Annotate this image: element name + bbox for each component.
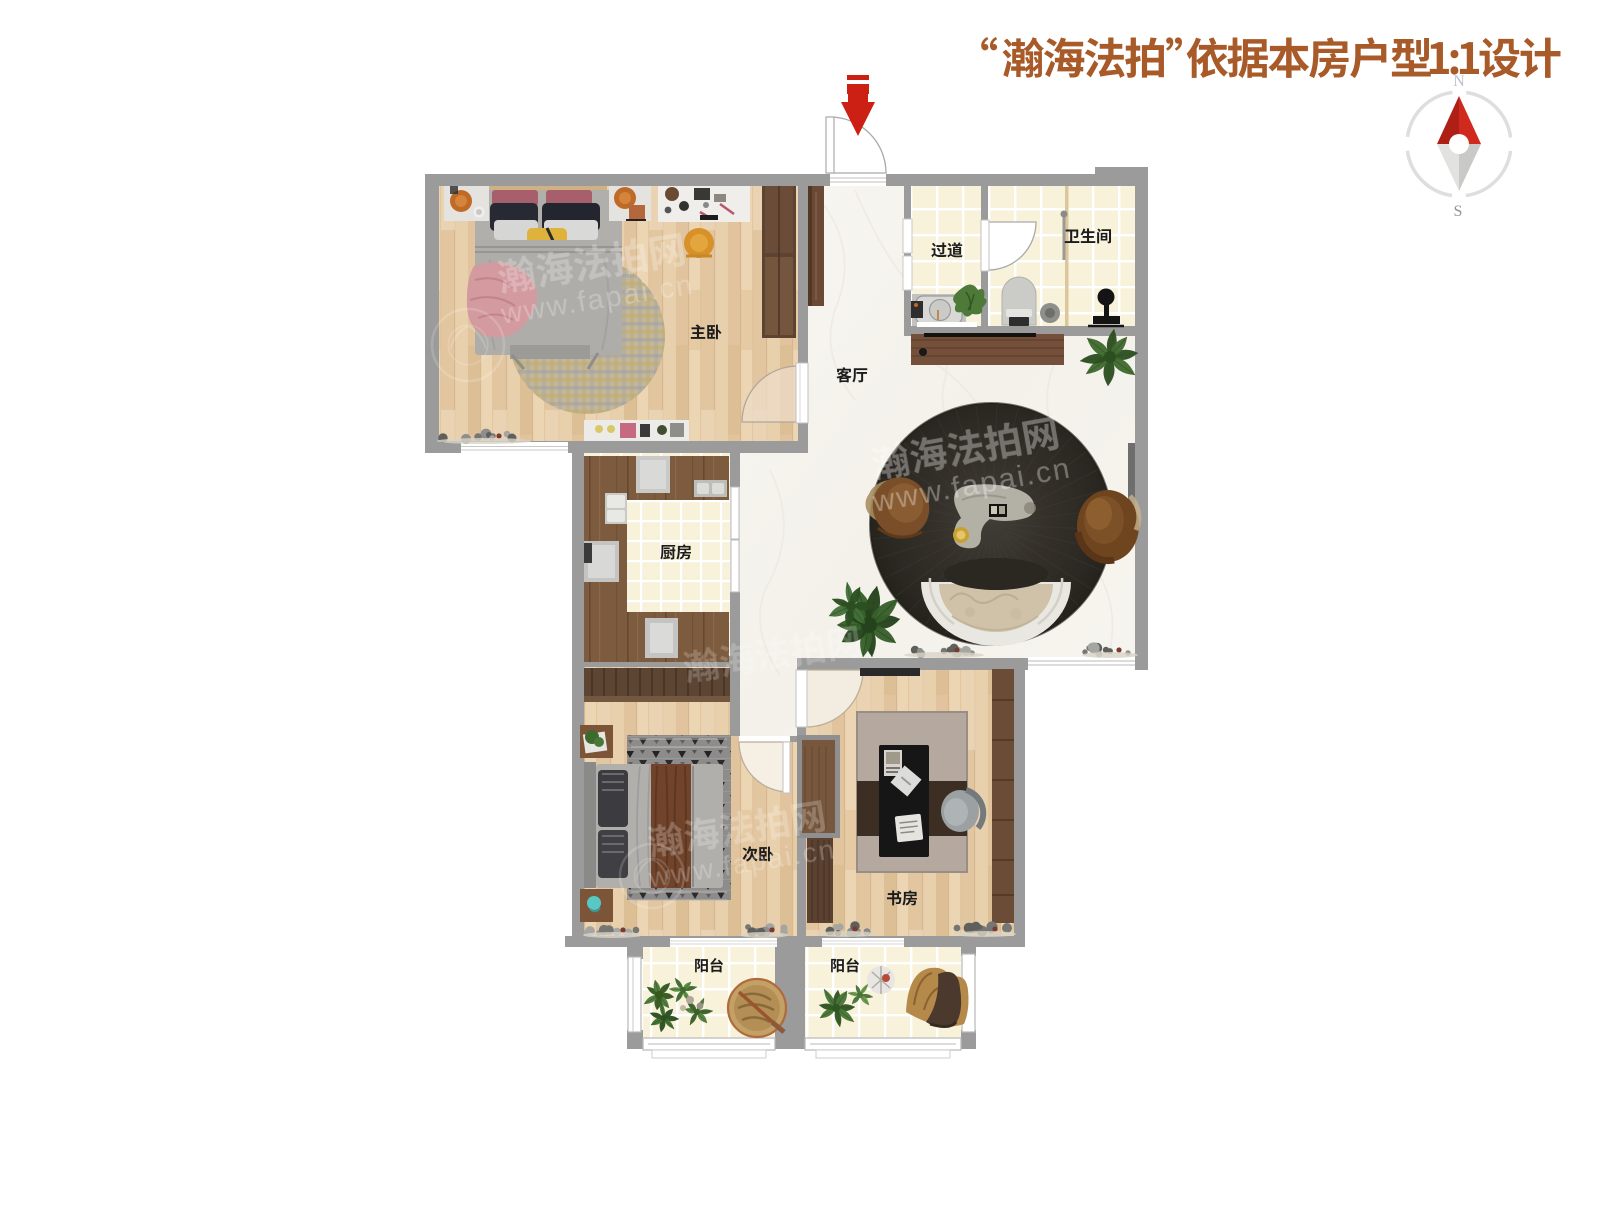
svg-text:S: S bbox=[1454, 203, 1463, 220]
svg-text:N: N bbox=[1453, 73, 1465, 90]
